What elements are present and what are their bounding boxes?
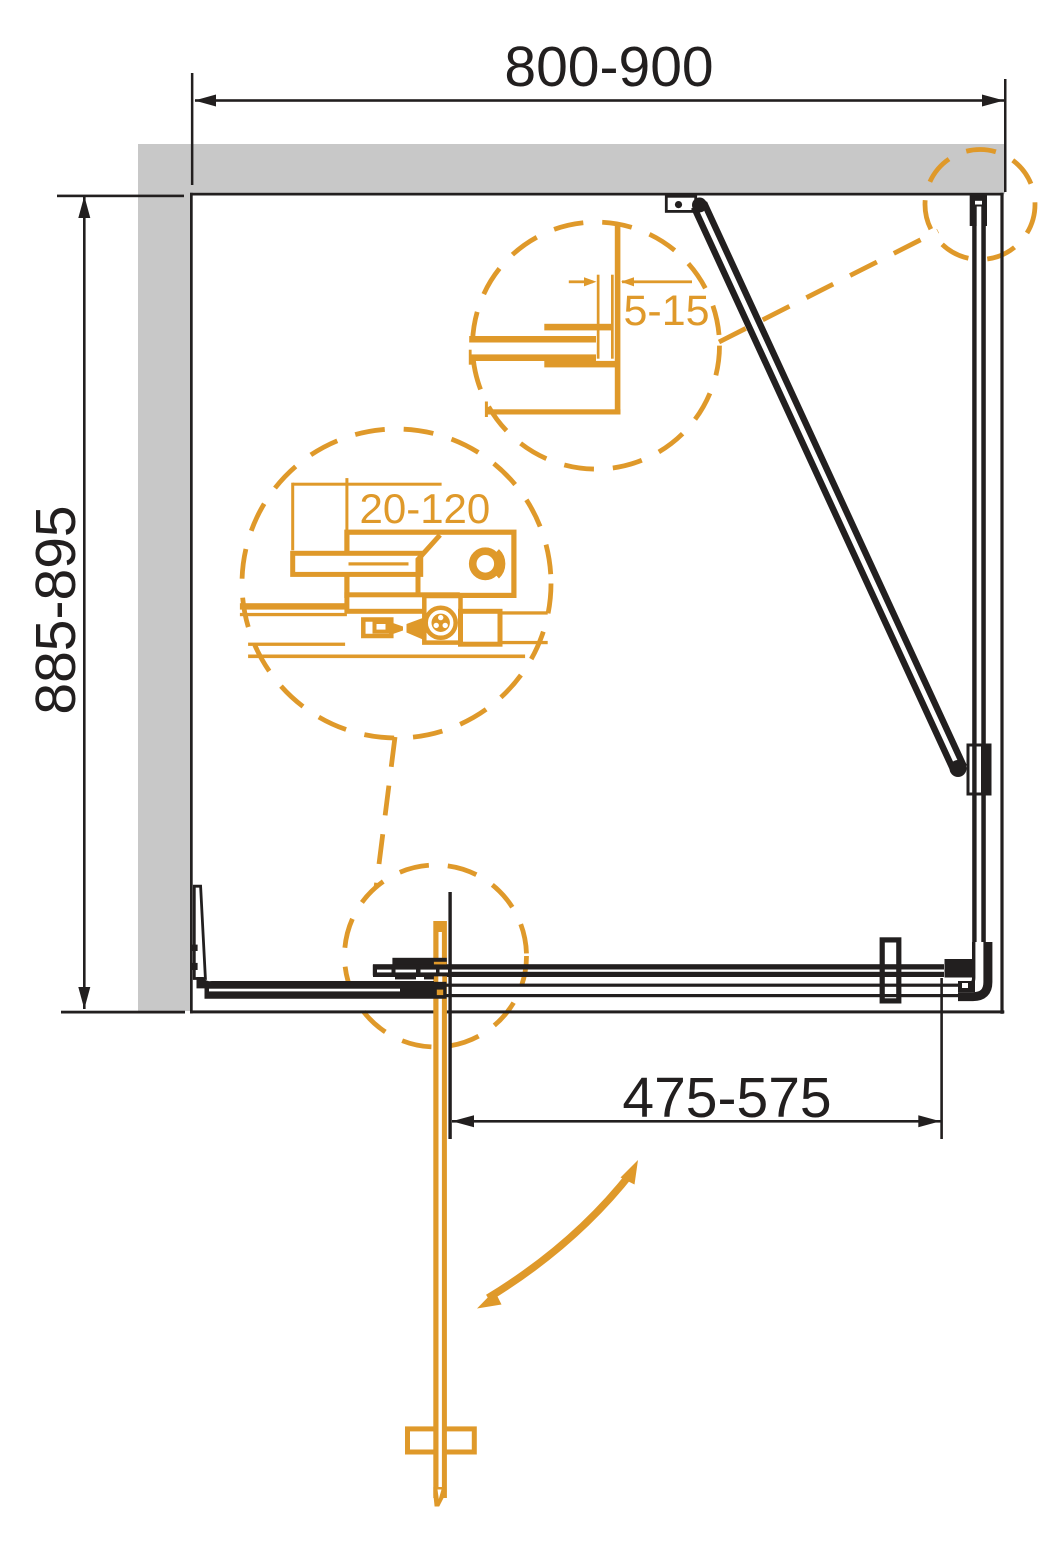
svg-text:475-575: 475-575 [622, 1066, 831, 1130]
svg-text:5-15: 5-15 [624, 287, 710, 335]
svg-text:885-895: 885-895 [24, 505, 88, 714]
svg-text:20-120: 20-120 [360, 485, 491, 532]
svg-text:800-900: 800-900 [504, 35, 713, 99]
